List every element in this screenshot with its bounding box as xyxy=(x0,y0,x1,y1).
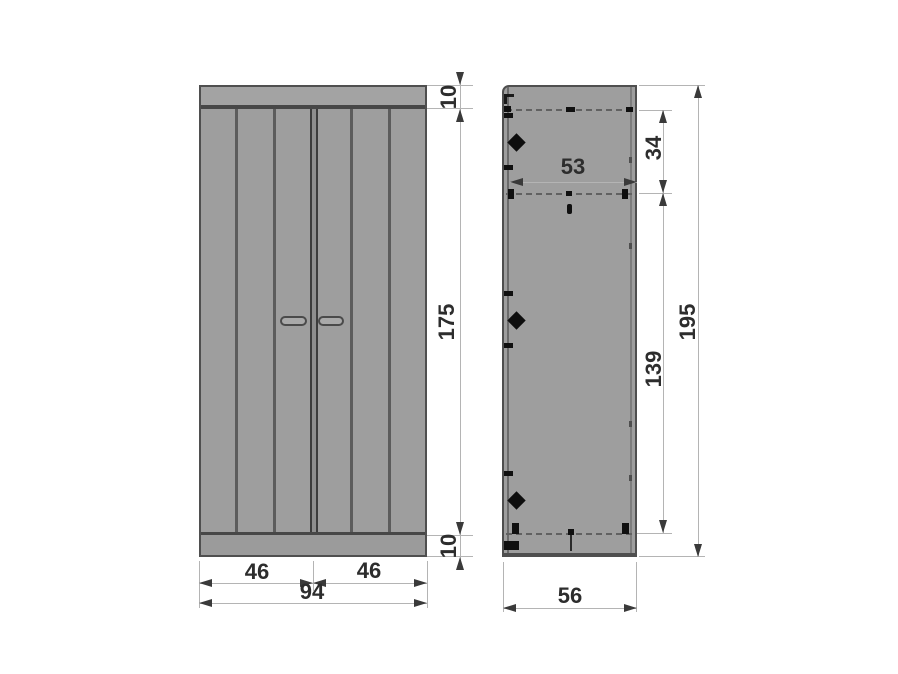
hinge-plate xyxy=(504,165,513,170)
dim-label-top-rail-thickness: 10 xyxy=(438,85,460,109)
plank-seam xyxy=(388,109,391,535)
arrowhead xyxy=(414,579,427,587)
arrowhead xyxy=(503,604,516,612)
door-gap xyxy=(310,109,318,535)
center-fastener-line xyxy=(570,535,572,551)
dim-label-interior-height: 139 xyxy=(643,351,665,388)
plank-seam xyxy=(235,109,238,535)
dim-label-overall-width: 94 xyxy=(300,581,324,603)
fastener-mark xyxy=(566,107,575,112)
arrowhead xyxy=(624,178,637,186)
front-bottom-rail xyxy=(201,532,425,555)
shelf-bracket xyxy=(622,189,628,199)
front-top-rail xyxy=(201,87,425,109)
hinge-bottom xyxy=(507,491,525,509)
arrowhead xyxy=(659,110,667,123)
shelf-bracket xyxy=(508,189,514,199)
extension-line xyxy=(639,110,672,111)
left-door-handle xyxy=(280,316,307,326)
fastener-mark xyxy=(504,106,511,112)
hinge-plate xyxy=(504,291,513,296)
hinge-plate xyxy=(504,343,513,348)
plank-seam xyxy=(350,109,353,535)
arrowhead xyxy=(694,544,702,557)
shelf-bracket xyxy=(622,523,629,534)
dim-label-inner-depth: 53 xyxy=(561,156,585,178)
arrowhead xyxy=(659,520,667,533)
hinge-plate xyxy=(504,471,513,476)
arrowhead xyxy=(456,557,464,570)
extension-line xyxy=(639,193,672,194)
dimension-line-inner-depth xyxy=(510,182,637,183)
extension-line xyxy=(637,533,672,534)
dim-label-bottom-rail-thickness: 10 xyxy=(438,534,460,558)
foot-bracket xyxy=(504,541,519,550)
shelf-bracket xyxy=(512,523,519,534)
dim-label-left-door-width: 46 xyxy=(245,561,269,583)
arrowhead xyxy=(694,85,702,98)
screw-dot xyxy=(629,157,632,163)
dim-label-right-door-width: 46 xyxy=(357,560,381,582)
hinge-middle xyxy=(507,311,525,329)
arrowhead xyxy=(199,599,212,607)
fastener-mark xyxy=(566,191,572,196)
dimension-line-right-of-front xyxy=(460,74,461,568)
arrowhead xyxy=(456,72,464,85)
dimension-line-overall-depth xyxy=(503,608,637,609)
arrowhead xyxy=(456,109,464,122)
corner-bracket xyxy=(504,94,507,104)
arrowhead xyxy=(414,599,427,607)
hinge-plate xyxy=(504,113,513,118)
arrowhead xyxy=(510,178,523,186)
dim-label-door-height: 175 xyxy=(436,304,458,341)
technical-drawing-canvas: 10 175 10 46 46 94 53 34 139 195 56 xyxy=(0,0,898,674)
screw-dot xyxy=(629,421,632,427)
front-view-outline xyxy=(199,85,427,557)
plank-seam xyxy=(273,109,276,535)
arrowhead xyxy=(659,193,667,206)
dim-label-top-shelf-spacing: 34 xyxy=(643,136,665,160)
fastener-mark xyxy=(626,107,633,112)
right-door-handle xyxy=(318,316,344,326)
arrowhead xyxy=(199,579,212,587)
dimension-line-shelf-heights xyxy=(663,110,664,533)
arrowhead xyxy=(659,180,667,193)
extension-line xyxy=(427,561,428,608)
hinge-top xyxy=(507,133,525,151)
dim-label-overall-height: 195 xyxy=(677,304,699,341)
dim-label-overall-depth: 56 xyxy=(558,585,582,607)
arrowhead xyxy=(624,604,637,612)
screw-dot xyxy=(629,243,632,249)
screw-mark xyxy=(567,204,572,214)
screw-dot xyxy=(629,475,632,481)
